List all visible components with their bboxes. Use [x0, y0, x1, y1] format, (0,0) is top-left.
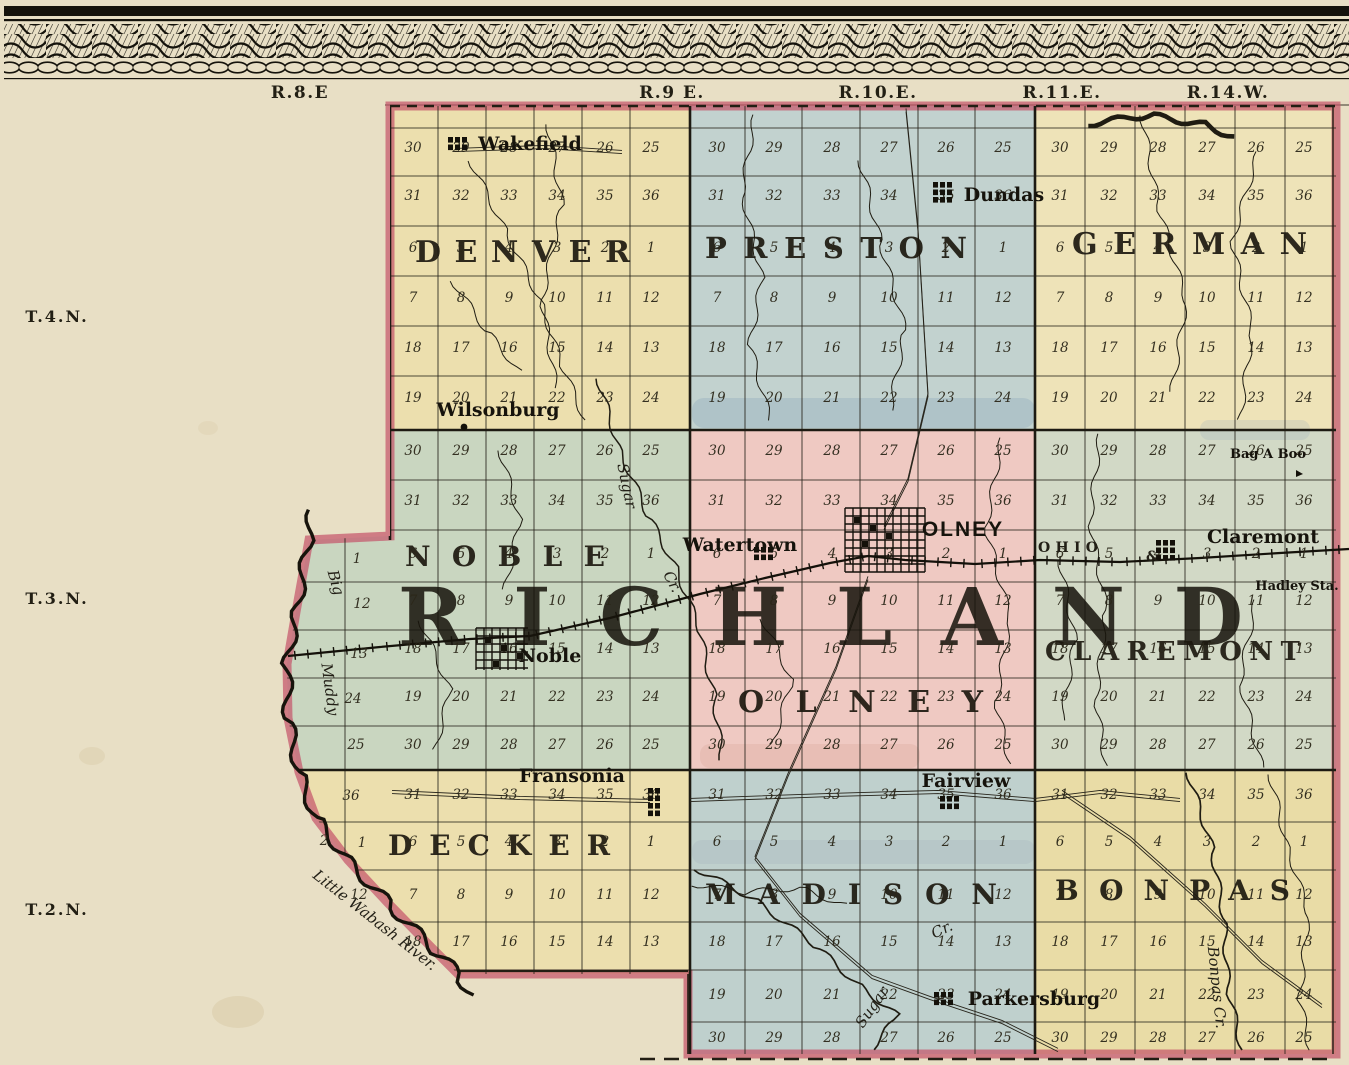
town-symbol: [933, 182, 938, 188]
section-number: 32: [452, 188, 469, 204]
town-symbol: [948, 992, 953, 998]
section-number: 29: [764, 140, 783, 156]
section-number: 13: [1295, 641, 1312, 657]
section-number: 18: [404, 340, 422, 356]
railroad-label: &: [1146, 549, 1163, 565]
section-number: 13: [642, 641, 659, 657]
section-number: 6: [409, 546, 418, 562]
section-number: 9: [505, 887, 514, 903]
section-number: 16: [1149, 934, 1167, 950]
railroad-tick: [951, 558, 952, 567]
section-number: 3: [1203, 834, 1212, 850]
section-number: 11: [596, 593, 613, 609]
atlas-page: R.8.E R.9 E. R.10.E. R.11.E. R.14.W. T.4…: [0, 0, 1349, 1065]
section-number: 10: [880, 290, 898, 306]
section-number: 24: [343, 691, 361, 707]
section-number: 25: [641, 443, 659, 459]
section-number: 1: [1300, 834, 1309, 850]
section-number: 26: [595, 443, 614, 459]
section-number: 26: [936, 1030, 955, 1046]
section-number: 12: [1295, 887, 1312, 903]
section-number: 13: [994, 641, 1011, 657]
range-label: R.14.W.: [1187, 83, 1269, 103]
section-number: 7: [713, 887, 722, 903]
section-number: 11: [1247, 887, 1264, 903]
section-number: 2: [1251, 546, 1261, 562]
railroad-tick: [995, 558, 996, 567]
section-number: 10: [1198, 290, 1216, 306]
section-number: 16: [823, 340, 841, 356]
town-symbol: [934, 992, 939, 998]
section-number: 7: [713, 290, 722, 306]
city-block: [493, 661, 499, 667]
section-number: 15: [548, 340, 565, 356]
section-number: 7: [713, 593, 722, 609]
section-number: 7: [409, 593, 418, 609]
section-number: 20: [1099, 689, 1118, 705]
railroad-tick: [1233, 551, 1234, 560]
town-label: OLNEY: [922, 518, 1004, 541]
section-number: 30: [708, 1030, 726, 1046]
section-number: 32: [452, 787, 469, 803]
section-number: 9: [828, 887, 837, 903]
city-block: [870, 525, 876, 531]
section-number: 2: [319, 833, 329, 849]
section-number: 34: [880, 493, 897, 509]
town-symbol: [947, 796, 952, 802]
section-number: 1: [1300, 240, 1309, 256]
town-symbol: [947, 804, 952, 810]
section-number: 28: [1148, 443, 1167, 459]
section-number: 6: [409, 834, 418, 850]
section-number: 33: [1149, 787, 1166, 803]
section-number: 11: [937, 290, 954, 306]
section-number: 30: [1051, 443, 1069, 459]
section-number: 17: [452, 934, 470, 950]
section-number: 14: [596, 340, 613, 356]
section-number: 29: [451, 443, 470, 459]
town-symbol: [941, 1000, 946, 1006]
section-number: 34: [548, 493, 565, 509]
town-symbol: [940, 197, 945, 203]
section-number: 11: [596, 887, 613, 903]
town-symbol: [455, 145, 460, 151]
section-number: 16: [500, 340, 518, 356]
section-number: 6: [713, 834, 722, 850]
section-number: 14: [596, 641, 613, 657]
railroad-tick: [346, 646, 347, 655]
region-preston: [690, 104, 1035, 430]
section-number: 3: [553, 240, 562, 256]
town-symbol: [462, 145, 467, 151]
section-number: 10: [1198, 593, 1216, 609]
section-number: 22: [1197, 390, 1215, 406]
section-number: 6: [1056, 240, 1065, 256]
section-number: 28: [822, 737, 841, 753]
section-number: 22: [547, 689, 565, 705]
section-number: 35: [937, 493, 954, 509]
section-number: 20: [764, 987, 783, 1003]
section-number: 32: [1100, 493, 1117, 509]
town-label: Watertown: [682, 534, 798, 556]
section-number: 30: [404, 443, 422, 459]
section-number: 16: [823, 934, 841, 950]
section-number: 17: [452, 641, 470, 657]
section-number: 6: [713, 240, 722, 256]
section-number: 3: [885, 834, 894, 850]
section-number: 26: [595, 737, 614, 753]
section-number: 33: [823, 188, 840, 204]
town-symbol: [648, 811, 653, 817]
section-number: 31: [404, 493, 421, 509]
railroad-tick: [874, 552, 875, 561]
section-number: 29: [1099, 737, 1118, 753]
section-number: 34: [548, 787, 565, 803]
section-number: 1: [358, 835, 367, 851]
town-symbol: [954, 804, 959, 810]
section-number: 29: [1099, 140, 1118, 156]
section-number: 23: [1246, 689, 1264, 705]
section-number: 10: [548, 290, 566, 306]
section-number: 18: [1051, 641, 1069, 657]
section-number: 5: [1105, 834, 1114, 850]
section-number: 5: [770, 834, 779, 850]
section-number: 32: [1100, 188, 1117, 204]
section-number: 33: [500, 787, 517, 803]
section-number: 8: [770, 887, 779, 903]
section-number: 17: [1100, 934, 1118, 950]
section-number: 17: [765, 641, 783, 657]
section-number: 14: [937, 641, 954, 657]
section-number: 15: [880, 934, 897, 950]
town-label: Wakefield: [477, 133, 582, 155]
section-number: 35: [596, 188, 613, 204]
section-number: 33: [500, 493, 517, 509]
town-label: Noble: [519, 645, 582, 667]
section-number: 28: [1148, 1030, 1167, 1046]
railroad-tick: [1021, 557, 1022, 566]
section-number: 6: [1056, 834, 1065, 850]
section-number: 20: [451, 689, 470, 705]
section-number: 21: [822, 689, 840, 705]
section-number: 27: [879, 443, 898, 459]
section-number: 2: [600, 240, 610, 256]
section-number: 28: [822, 140, 841, 156]
section-number: 7: [1056, 290, 1065, 306]
town-symbol: [933, 190, 938, 196]
section-number: 5: [457, 834, 466, 850]
section-number: 12: [642, 593, 659, 609]
section-number: 19: [404, 390, 422, 406]
section-number: 17: [1100, 641, 1118, 657]
section-number: 1: [999, 834, 1008, 850]
railroad-tick: [1220, 552, 1221, 561]
section-number: 31: [404, 787, 421, 803]
section-number: 2: [941, 240, 951, 256]
section-number: 23: [1246, 987, 1264, 1003]
section-number: 26: [1246, 140, 1265, 156]
town-symbol: [655, 796, 660, 802]
range-label: R.10.E.: [839, 83, 918, 103]
section-number: 27: [1197, 1030, 1216, 1046]
section-number: 11: [937, 593, 954, 609]
section-number: 29: [451, 737, 470, 753]
section-number: 36: [1295, 493, 1313, 509]
railroad-tick: [333, 647, 334, 656]
section-number: 9: [505, 290, 514, 306]
section-number: 29: [451, 140, 470, 156]
section-number: 16: [1149, 340, 1167, 356]
section-number: 15: [880, 641, 897, 657]
section-number: 20: [764, 689, 783, 705]
section-number: 34: [548, 188, 565, 204]
town-label: Hadley Sta.: [1255, 579, 1338, 594]
section-number: 32: [452, 493, 469, 509]
section-number: 24: [1294, 689, 1312, 705]
section-number: 25: [993, 140, 1011, 156]
section-number: 10: [548, 887, 566, 903]
railroad-tick: [307, 650, 308, 659]
section-number: 8: [770, 290, 779, 306]
section-number: 25: [1294, 737, 1312, 753]
section-number: 3: [885, 240, 894, 256]
town-symbol: [648, 788, 653, 794]
section-number: 18: [708, 641, 726, 657]
section-number: 2: [1251, 834, 1261, 850]
section-number: 33: [823, 787, 840, 803]
town-symbol: [948, 1000, 953, 1006]
town-label: Parkersburg: [968, 988, 1100, 1010]
town-symbol: [1170, 555, 1175, 561]
section-number: 28: [822, 443, 841, 459]
section-number: 31: [1051, 493, 1068, 509]
section-number: 23: [595, 390, 613, 406]
section-number: 3: [1203, 546, 1212, 562]
section-number: 1: [999, 546, 1008, 562]
railroad-tick: [1008, 557, 1009, 566]
section-number: 22: [879, 390, 897, 406]
town-label: Dundas: [964, 184, 1044, 206]
city-block: [485, 637, 491, 643]
section-number: 1: [999, 240, 1008, 256]
section-number: 17: [452, 340, 470, 356]
railroad-tick: [372, 643, 373, 652]
town-symbol: [940, 190, 945, 196]
section-number: 30: [708, 443, 726, 459]
city-block: [862, 541, 868, 547]
railroad-tick: [938, 557, 939, 566]
town-symbol: [947, 182, 952, 188]
section-number: 7: [1056, 593, 1065, 609]
section-number: 18: [1051, 340, 1069, 356]
town-symbol: [655, 803, 660, 809]
section-number: 19: [404, 689, 422, 705]
section-number: 27: [547, 443, 566, 459]
section-number: 24: [1294, 390, 1312, 406]
section-number: 17: [1100, 340, 1118, 356]
section-number: 4: [827, 546, 837, 562]
county-map: R.8.E R.9 E. R.10.E. R.11.E. R.14.W. T.4…: [0, 0, 1349, 1065]
section-number: 15: [1198, 641, 1215, 657]
section-number: 15: [548, 934, 565, 950]
town-label: Fairview: [922, 770, 1011, 792]
section-number: 11: [1247, 290, 1264, 306]
section-number: 9: [828, 593, 837, 609]
section-number: 30: [1051, 140, 1069, 156]
railroad-tick: [1272, 549, 1273, 558]
railroad-label: OHIO: [1038, 540, 1102, 556]
section-number: 21: [1148, 987, 1166, 1003]
section-number: 13: [994, 934, 1011, 950]
section-number: 8: [770, 593, 779, 609]
section-number: 1: [353, 551, 362, 567]
section-number: 5: [1105, 546, 1114, 562]
section-number: 29: [764, 443, 783, 459]
township-row-label: T.4.N.: [25, 307, 88, 326]
section-number: 23: [936, 390, 954, 406]
town-label: Wilsonburg: [435, 399, 559, 421]
town-symbol: [655, 788, 660, 794]
section-number: 25: [993, 737, 1011, 753]
section-number: 35: [937, 188, 954, 204]
railroad-tick: [1339, 545, 1340, 554]
town-symbol: [941, 992, 946, 998]
town-label: Fransonia: [519, 765, 625, 787]
section-number: 21: [1148, 390, 1166, 406]
section-number: 13: [642, 340, 659, 356]
section-number: 13: [994, 340, 1011, 356]
section-number: 12: [642, 290, 659, 306]
town-symbol: [954, 796, 959, 802]
section-number: 9: [1154, 593, 1163, 609]
section-number: 12: [1295, 593, 1312, 609]
section-number: 5: [457, 240, 466, 256]
section-number: 15: [880, 340, 897, 356]
section-number: 9: [505, 593, 514, 609]
railroad-tick: [964, 559, 965, 568]
section-number: 24: [993, 689, 1011, 705]
section-number: 20: [1099, 390, 1118, 406]
town-symbol: [655, 811, 660, 817]
town-symbol: [947, 190, 952, 196]
section-number: 27: [879, 737, 898, 753]
section-number: 34: [1198, 787, 1215, 803]
section-number: 2: [600, 834, 610, 850]
section-number: 8: [1105, 290, 1114, 306]
section-number: 26: [936, 140, 955, 156]
section-number: 8: [457, 290, 466, 306]
section-number: 18: [1051, 934, 1069, 950]
section-number: 14: [1247, 934, 1264, 950]
section-number: 35: [1247, 188, 1264, 204]
section-number: 3: [1203, 240, 1212, 256]
section-number: 30: [708, 737, 726, 753]
town-symbol: [947, 197, 952, 203]
town-symbol: [940, 804, 945, 810]
range-label: R.11.E.: [1023, 83, 1102, 103]
section-number: 25: [346, 737, 364, 753]
section-number: 36: [1295, 188, 1313, 204]
section-number: 33: [823, 493, 840, 509]
railroad-tick: [295, 651, 296, 660]
section-number: 2: [941, 834, 951, 850]
section-number: 14: [937, 340, 954, 356]
town-symbol: [448, 137, 453, 143]
section-number: 35: [1247, 493, 1264, 509]
section-number: 25: [1294, 1030, 1312, 1046]
section-number: 18: [708, 340, 726, 356]
section-number: 12: [994, 593, 1011, 609]
section-number: 1: [1300, 546, 1309, 562]
section-number: 31: [1051, 188, 1068, 204]
town-symbol: [1156, 540, 1161, 546]
section-number: 11: [937, 887, 954, 903]
section-number: 36: [1295, 787, 1313, 803]
section-number: 11: [1247, 593, 1264, 609]
section-number: 12: [994, 290, 1011, 306]
river-wash: [692, 398, 1035, 428]
section-number: 27: [1197, 443, 1216, 459]
section-number: 12: [353, 596, 370, 612]
town-symbol: [462, 137, 467, 143]
range-label: R.8.E: [271, 83, 329, 103]
section-number: 35: [596, 787, 613, 803]
section-number: 12: [994, 887, 1011, 903]
section-number: 12: [642, 887, 659, 903]
section-number: 5: [457, 546, 466, 562]
section-number: 19: [1051, 390, 1069, 406]
section-number: 29: [764, 1030, 783, 1046]
range-label: R.9 E.: [639, 83, 705, 103]
region-decker: [270, 770, 690, 974]
section-number: 14: [1247, 641, 1264, 657]
section-number: 10: [880, 593, 898, 609]
section-number: 30: [708, 140, 726, 156]
section-number: 16: [1149, 641, 1167, 657]
railroad-tick: [982, 559, 983, 568]
section-number: 10: [1198, 887, 1216, 903]
town-symbol: [934, 1000, 939, 1006]
town-symbol: [1170, 548, 1175, 554]
section-number: 26: [595, 140, 614, 156]
section-number: 4: [1153, 240, 1163, 256]
section-number: 19: [1051, 689, 1069, 705]
section-number: 29: [764, 737, 783, 753]
section-number: 22: [879, 689, 897, 705]
section-number: 4: [504, 834, 514, 850]
township-row-label: T.3.N.: [25, 589, 88, 608]
section-number: 10: [880, 887, 898, 903]
town-symbol: [461, 424, 468, 431]
section-number: 28: [1148, 737, 1167, 753]
section-number: 31: [708, 188, 725, 204]
section-number: 26: [1246, 1030, 1265, 1046]
section-number: 16: [500, 934, 518, 950]
section-number: 19: [708, 390, 726, 406]
section-number: 32: [765, 787, 782, 803]
section-number: 30: [404, 140, 422, 156]
section-number: 34: [1198, 493, 1215, 509]
section-number: 34: [1198, 188, 1215, 204]
section-number: 29: [1099, 1030, 1118, 1046]
town-symbol: [1163, 540, 1168, 546]
section-number: 4: [827, 834, 837, 850]
section-number: 34: [880, 188, 897, 204]
section-number: 27: [879, 140, 898, 156]
section-number: 1: [647, 546, 656, 562]
section-number: 33: [500, 188, 517, 204]
section-number: 16: [823, 641, 841, 657]
